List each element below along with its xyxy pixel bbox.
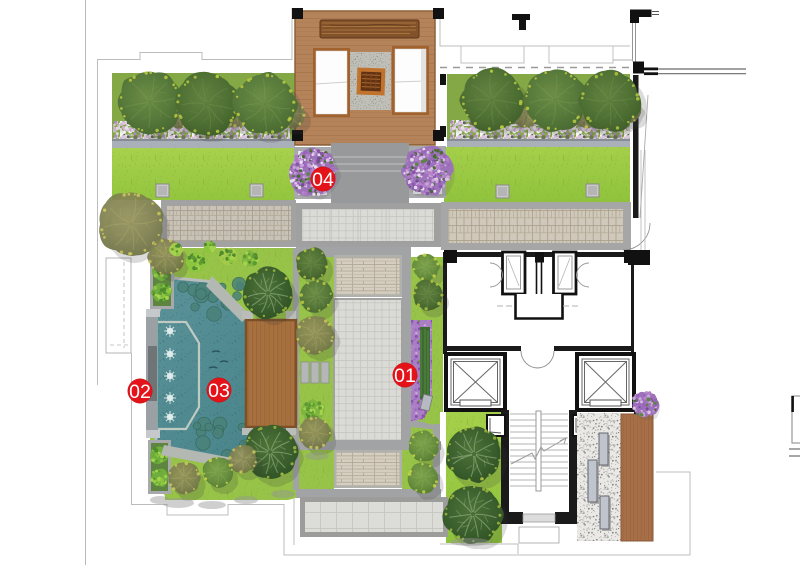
svg-text:02: 02 [129,381,151,403]
svg-text:01: 01 [394,365,416,387]
svg-text:03: 03 [208,380,230,402]
svg-text:04: 04 [312,169,334,191]
